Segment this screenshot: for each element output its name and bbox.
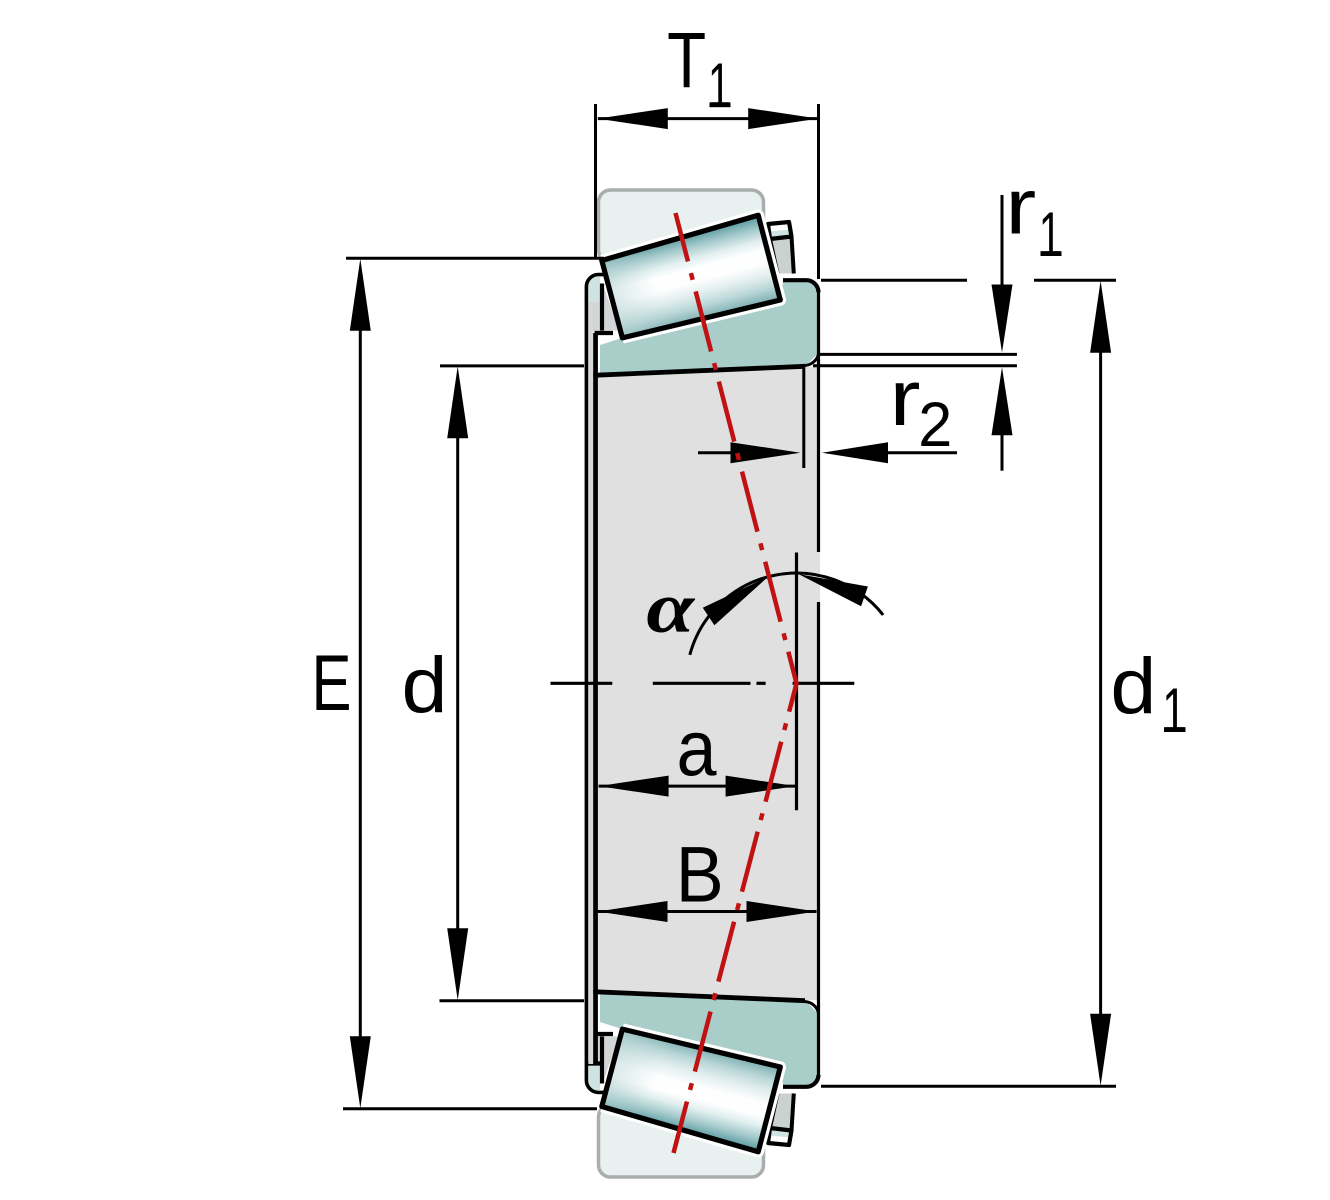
svg-text:T: T xyxy=(667,15,706,104)
svg-text:d: d xyxy=(1110,641,1156,730)
svg-text:α: α xyxy=(646,569,695,649)
svg-text:r: r xyxy=(1005,161,1036,250)
svg-text:1: 1 xyxy=(708,51,731,121)
svg-text:1: 1 xyxy=(1162,676,1186,746)
svg-text:B: B xyxy=(676,830,724,919)
svg-text:d: d xyxy=(402,640,448,729)
svg-text:a: a xyxy=(677,703,717,792)
svg-text:1: 1 xyxy=(1039,200,1062,270)
svg-text:2: 2 xyxy=(918,390,952,460)
svg-text:E: E xyxy=(312,638,352,727)
svg-text:r: r xyxy=(890,353,921,442)
